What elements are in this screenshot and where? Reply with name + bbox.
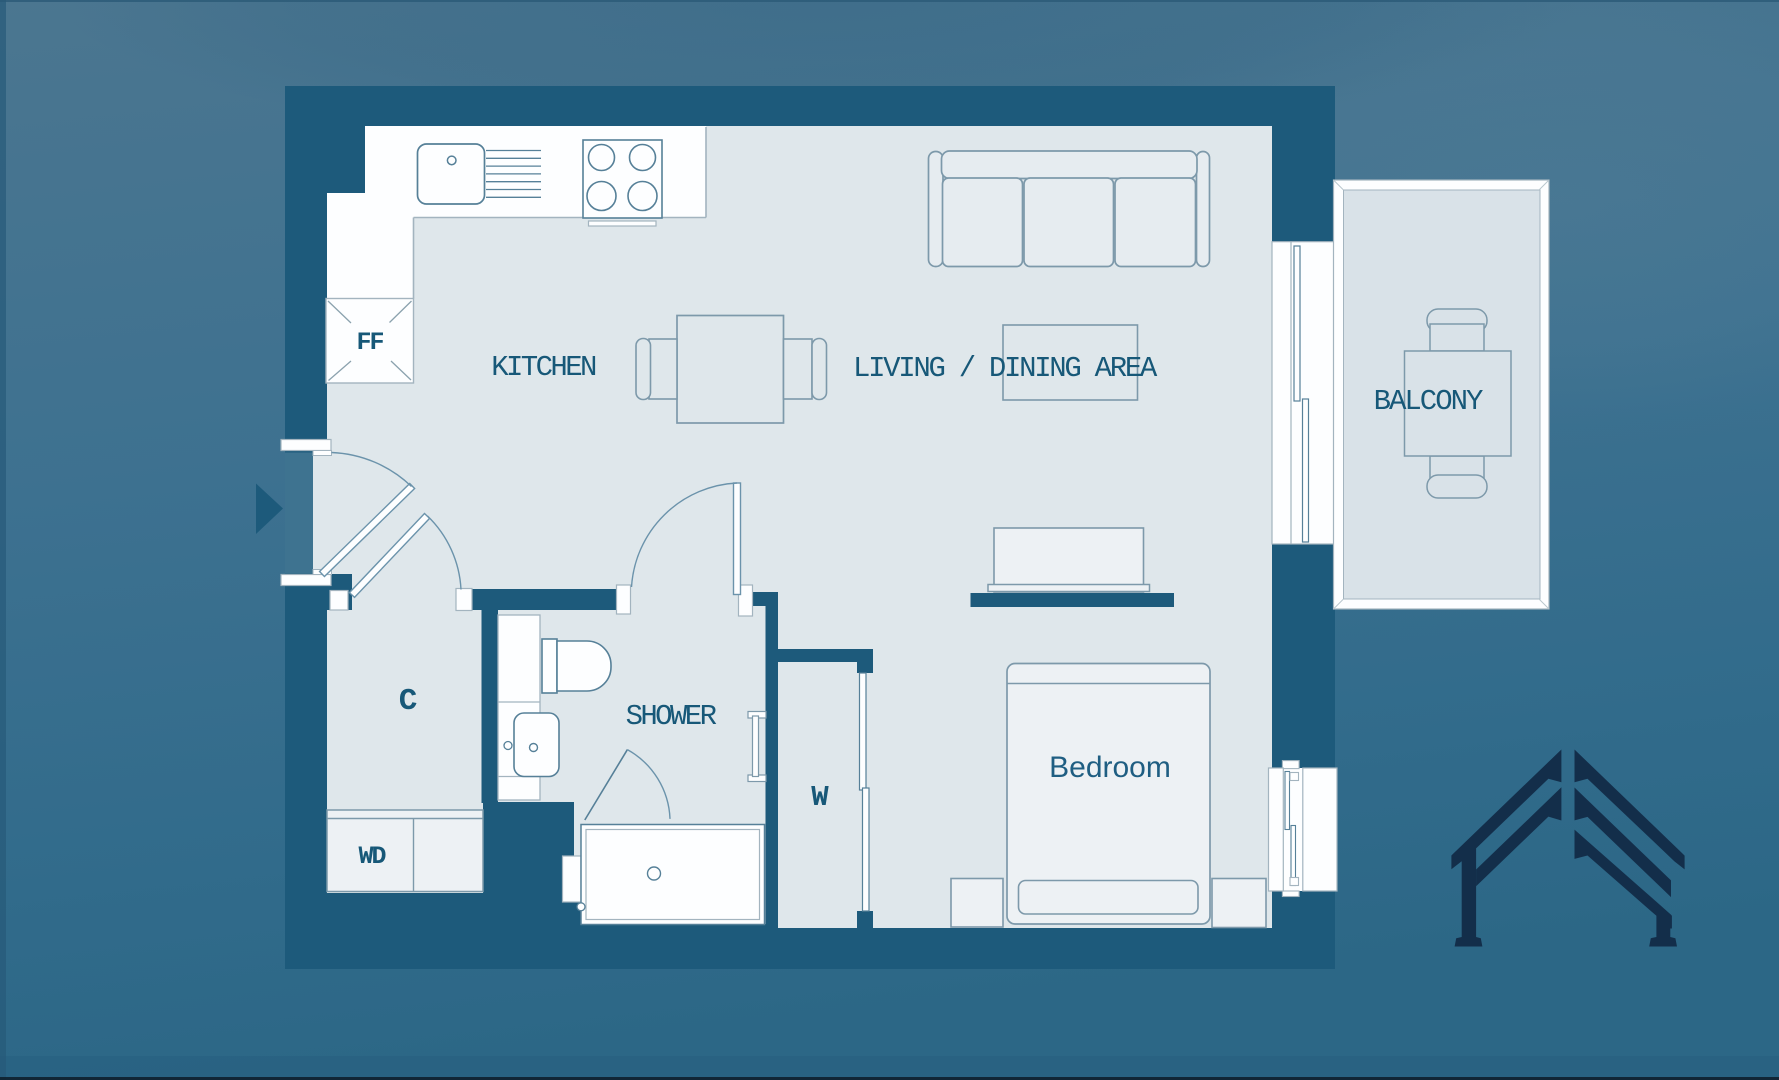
svg-text:BALCONY: BALCONY [1374, 385, 1483, 418]
svg-text:SHOWER: SHOWER [626, 700, 717, 733]
svg-text:C: C [399, 684, 418, 719]
svg-text:LIVING / DINING AREA: LIVING / DINING AREA [853, 352, 1158, 385]
svg-text:WD: WD [358, 842, 386, 871]
svg-text:FF: FF [356, 328, 383, 357]
svg-text:W: W [811, 781, 829, 814]
svg-text:Bedroom: Bedroom [1049, 751, 1171, 784]
svg-text:KITCHEN: KITCHEN [491, 351, 596, 384]
